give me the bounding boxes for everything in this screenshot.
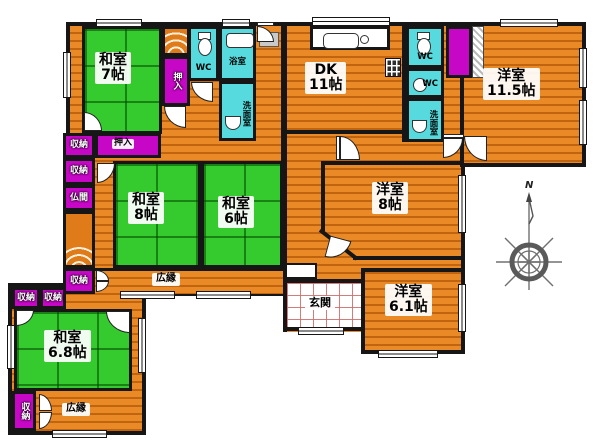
window: [196, 291, 251, 299]
closet-shuno-6: 収納: [12, 391, 36, 431]
tokonoma-alcove-top: [162, 26, 190, 56]
label-washitsu-8: 和室 8帖: [128, 192, 164, 224]
closet-shuno-1: 収納: [63, 133, 95, 158]
room-name: 和室: [48, 331, 87, 346]
window: [96, 19, 142, 27]
north-arrow: [526, 192, 532, 202]
window: [7, 325, 15, 369]
room-wc-1: WC: [188, 26, 219, 81]
tokonoma-alcove-left: [63, 211, 95, 268]
room-size: 6.8帖: [48, 346, 87, 361]
closet-label: 収納: [43, 290, 63, 306]
room-size: 7帖: [99, 68, 127, 83]
closet-label: 仏間: [66, 188, 92, 208]
room-name: 洋室: [389, 285, 428, 300]
room-size: 11帖: [309, 78, 342, 93]
wc-label: WC: [191, 64, 216, 73]
label-yoshitsu-115: 洋室 11.5帖: [483, 68, 540, 100]
window: [222, 19, 250, 27]
window: [52, 430, 107, 438]
compass: N: [488, 178, 570, 293]
wall-yoshitsu8-north: [321, 161, 462, 165]
closet-label: 収納: [15, 394, 33, 428]
closet-butsuma: 仏間: [63, 185, 95, 211]
senmen-label: 洗面室: [429, 105, 438, 141]
room-name: 和室: [222, 197, 250, 212]
room-senmen-1: 洗面室: [219, 81, 256, 141]
room-size: 6帖: [222, 212, 250, 227]
compass-north-label: N: [525, 180, 534, 191]
closet-yoshitsu115: [446, 26, 472, 78]
wall-yoshitsu61-north: [361, 268, 462, 272]
label-hiroen-annex: 広縁: [62, 403, 90, 416]
window: [138, 318, 146, 373]
faucet-icon: [360, 35, 369, 44]
kitchen-counter: [310, 26, 390, 50]
room-size: 8帖: [376, 198, 404, 213]
cutout: [279, 332, 363, 358]
label-washitsu-68: 和室 6.8帖: [44, 330, 91, 362]
label-hiroen-main: 広縁: [152, 273, 180, 286]
room-name: 和室: [132, 193, 160, 208]
window: [63, 52, 71, 98]
closet-shuno-4: 収納: [12, 287, 40, 309]
closet-label: 収納: [66, 136, 92, 155]
senmen-label: 洗面室: [242, 90, 251, 138]
bathtub-icon: [226, 33, 254, 48]
closet-shuno-2: 収納: [63, 158, 95, 185]
label-yoshitsu-8: 洋室 8帖: [372, 182, 408, 214]
room-wc-2: WC: [406, 26, 444, 68]
toilet-icon: [198, 38, 212, 56]
room-wc-3: WC: [406, 68, 444, 98]
sink-icon: [412, 120, 427, 133]
kitchen-sink-icon: [323, 33, 359, 49]
wall-dk-south: [283, 130, 407, 134]
room-name: DK: [309, 63, 342, 78]
closet-label: 押入: [165, 59, 187, 103]
closet-label: 収納: [66, 161, 92, 182]
wc-label: WC: [409, 53, 441, 62]
window: [458, 284, 466, 332]
label-washitsu-6: 和室 6帖: [218, 196, 254, 228]
room-bath: 浴室: [219, 26, 256, 81]
wall-yoshitsu8-west: [321, 161, 325, 231]
label-dk: DK 11帖: [305, 62, 346, 94]
window-kitchen-bay: [312, 17, 390, 26]
window: [378, 350, 438, 358]
closet-oshiire-horizontal: 押入: [95, 133, 161, 158]
closet-label: 押入: [112, 139, 134, 149]
stove-icon: [385, 58, 401, 77]
closet-oshiire-vertical: 押入: [162, 56, 190, 106]
entrance-door: [298, 327, 344, 335]
window: [120, 291, 175, 299]
room-name: 洋室: [487, 69, 536, 84]
genkan-step: [285, 263, 317, 279]
room-name: 和室: [99, 53, 127, 68]
closet-shuno-5: 収納: [40, 287, 66, 309]
closet-shuno-3: 収納: [63, 268, 95, 294]
sink-icon: [225, 116, 241, 130]
wall-dk-east: [402, 22, 406, 142]
label-genkan: 玄関: [305, 296, 335, 310]
closet-label: 収納: [66, 271, 92, 291]
room-size: 8帖: [132, 208, 160, 223]
bath-label: 浴室: [222, 58, 253, 67]
wall-yoshitsu8-south: [353, 256, 462, 260]
label-yoshitsu-61: 洋室 6.1帖: [385, 284, 432, 316]
window: [579, 100, 587, 145]
label-washitsu-7: 和室 7帖: [95, 52, 131, 84]
room-senmen-2: 洗面室: [406, 98, 444, 142]
room-name: 洋室: [376, 183, 404, 198]
window: [579, 48, 587, 88]
closet-label: 収納: [15, 290, 37, 306]
floorplan: 押入 収納 押入 収納 仏間 収納 収納 収納 収納 WC 浴室 洗面室: [0, 0, 600, 440]
room-size: 11.5帖: [487, 84, 536, 99]
room-size: 6.1帖: [389, 300, 428, 315]
wc-label: WC: [422, 80, 438, 89]
window: [458, 175, 466, 233]
window: [500, 19, 558, 27]
